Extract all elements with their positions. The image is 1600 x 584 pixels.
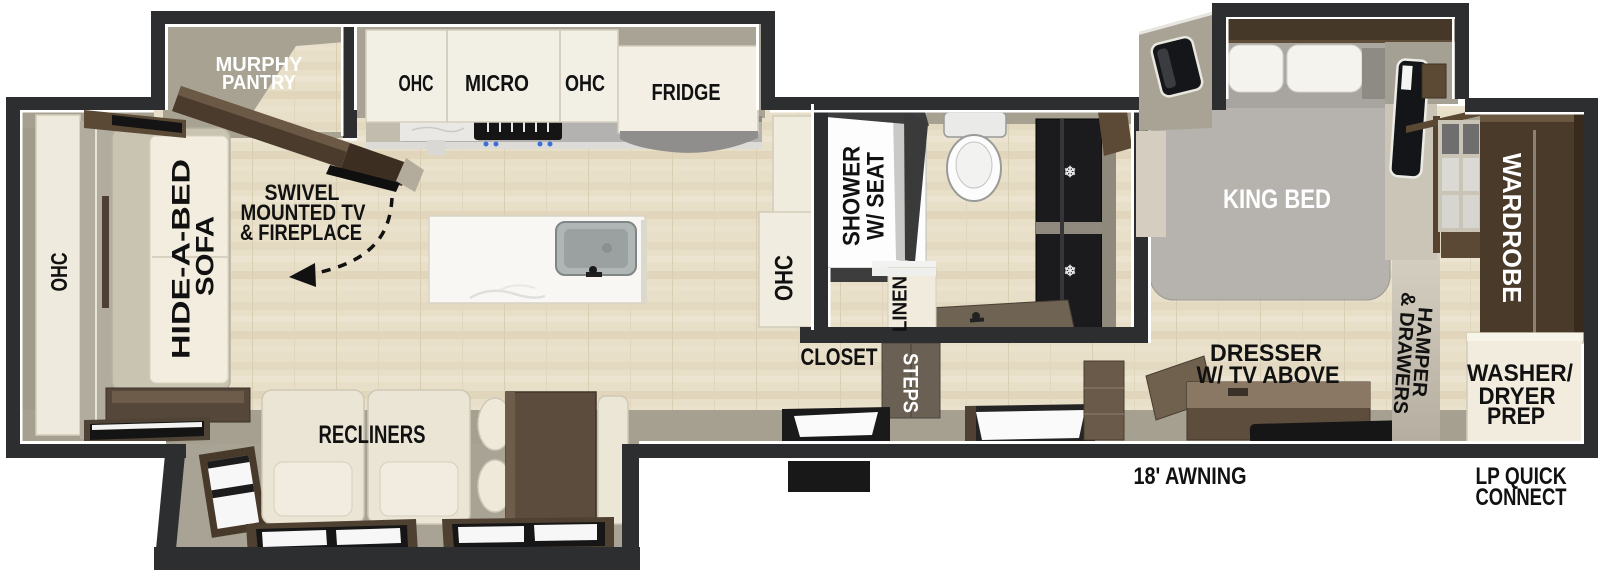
svg-text:18' AWNING: 18' AWNING [1134, 463, 1247, 490]
svg-text:OHC: OHC [399, 70, 434, 96]
svg-text:❄: ❄ [1064, 164, 1077, 181]
svg-text:RECLINERS: RECLINERS [319, 421, 426, 449]
svg-text:PREP: PREP [1487, 403, 1545, 430]
svg-text:SOFA: SOFA [192, 216, 220, 296]
svg-text:LINEN: LINEN [889, 276, 911, 332]
svg-text:W/ TV ABOVE: W/ TV ABOVE [1197, 362, 1340, 389]
svg-text:CLOSET: CLOSET [801, 344, 878, 371]
svg-text:CONNECT: CONNECT [1476, 484, 1567, 511]
svg-text:OHC: OHC [46, 253, 72, 292]
svg-text:OHC: OHC [565, 70, 605, 96]
svg-text:OHC: OHC [771, 255, 799, 301]
svg-text:W/ SEAT: W/ SEAT [862, 152, 889, 240]
svg-text:SHOWER: SHOWER [838, 146, 865, 246]
svg-text:FRIDGE: FRIDGE [652, 79, 721, 105]
svg-text:WARDROBE: WARDROBE [1497, 153, 1527, 303]
svg-text:❄: ❄ [1064, 263, 1077, 280]
svg-text:KING BED: KING BED [1223, 184, 1331, 214]
svg-text:STEPS: STEPS [898, 353, 921, 413]
svg-text:PANTRY: PANTRY [222, 72, 297, 94]
svg-text:& FIREPLACE: & FIREPLACE [240, 220, 362, 245]
svg-text:MICRO: MICRO [465, 70, 529, 96]
